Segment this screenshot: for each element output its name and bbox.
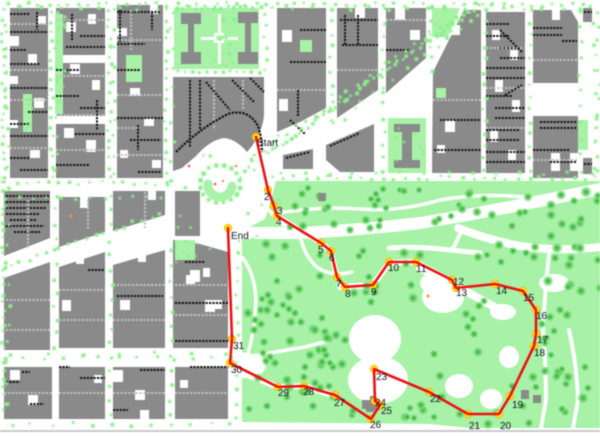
svg-text:15: 15: [523, 293, 535, 304]
svg-text:13: 13: [456, 288, 468, 299]
svg-text:7: 7: [336, 279, 342, 290]
svg-text:8: 8: [345, 289, 351, 300]
svg-text:16: 16: [536, 311, 548, 322]
svg-text:28: 28: [303, 387, 315, 398]
svg-text:2: 2: [264, 192, 270, 203]
svg-text:3: 3: [277, 206, 283, 217]
svg-text:12: 12: [453, 277, 465, 288]
svg-text:26: 26: [370, 420, 382, 431]
svg-text:6: 6: [329, 253, 335, 264]
svg-text:11: 11: [416, 264, 427, 275]
svg-text:18: 18: [534, 348, 546, 359]
svg-text:30: 30: [231, 365, 243, 376]
svg-text:29: 29: [278, 388, 290, 399]
svg-text:23: 23: [376, 372, 388, 383]
svg-text:14: 14: [496, 286, 508, 297]
svg-text:20: 20: [500, 421, 512, 432]
svg-text:21: 21: [469, 421, 481, 432]
svg-text:25: 25: [381, 406, 393, 417]
svg-text:19: 19: [512, 400, 524, 411]
svg-text:4: 4: [276, 217, 282, 228]
svg-text:End: End: [231, 231, 249, 242]
svg-text:10: 10: [388, 263, 400, 274]
svg-text:31: 31: [233, 341, 245, 352]
svg-text:22: 22: [430, 394, 442, 405]
svg-text:27: 27: [334, 398, 346, 409]
svg-text:9: 9: [371, 287, 377, 298]
svg-text:5: 5: [318, 245, 324, 256]
svg-text:Start: Start: [257, 138, 278, 149]
svg-text:17: 17: [537, 335, 549, 346]
